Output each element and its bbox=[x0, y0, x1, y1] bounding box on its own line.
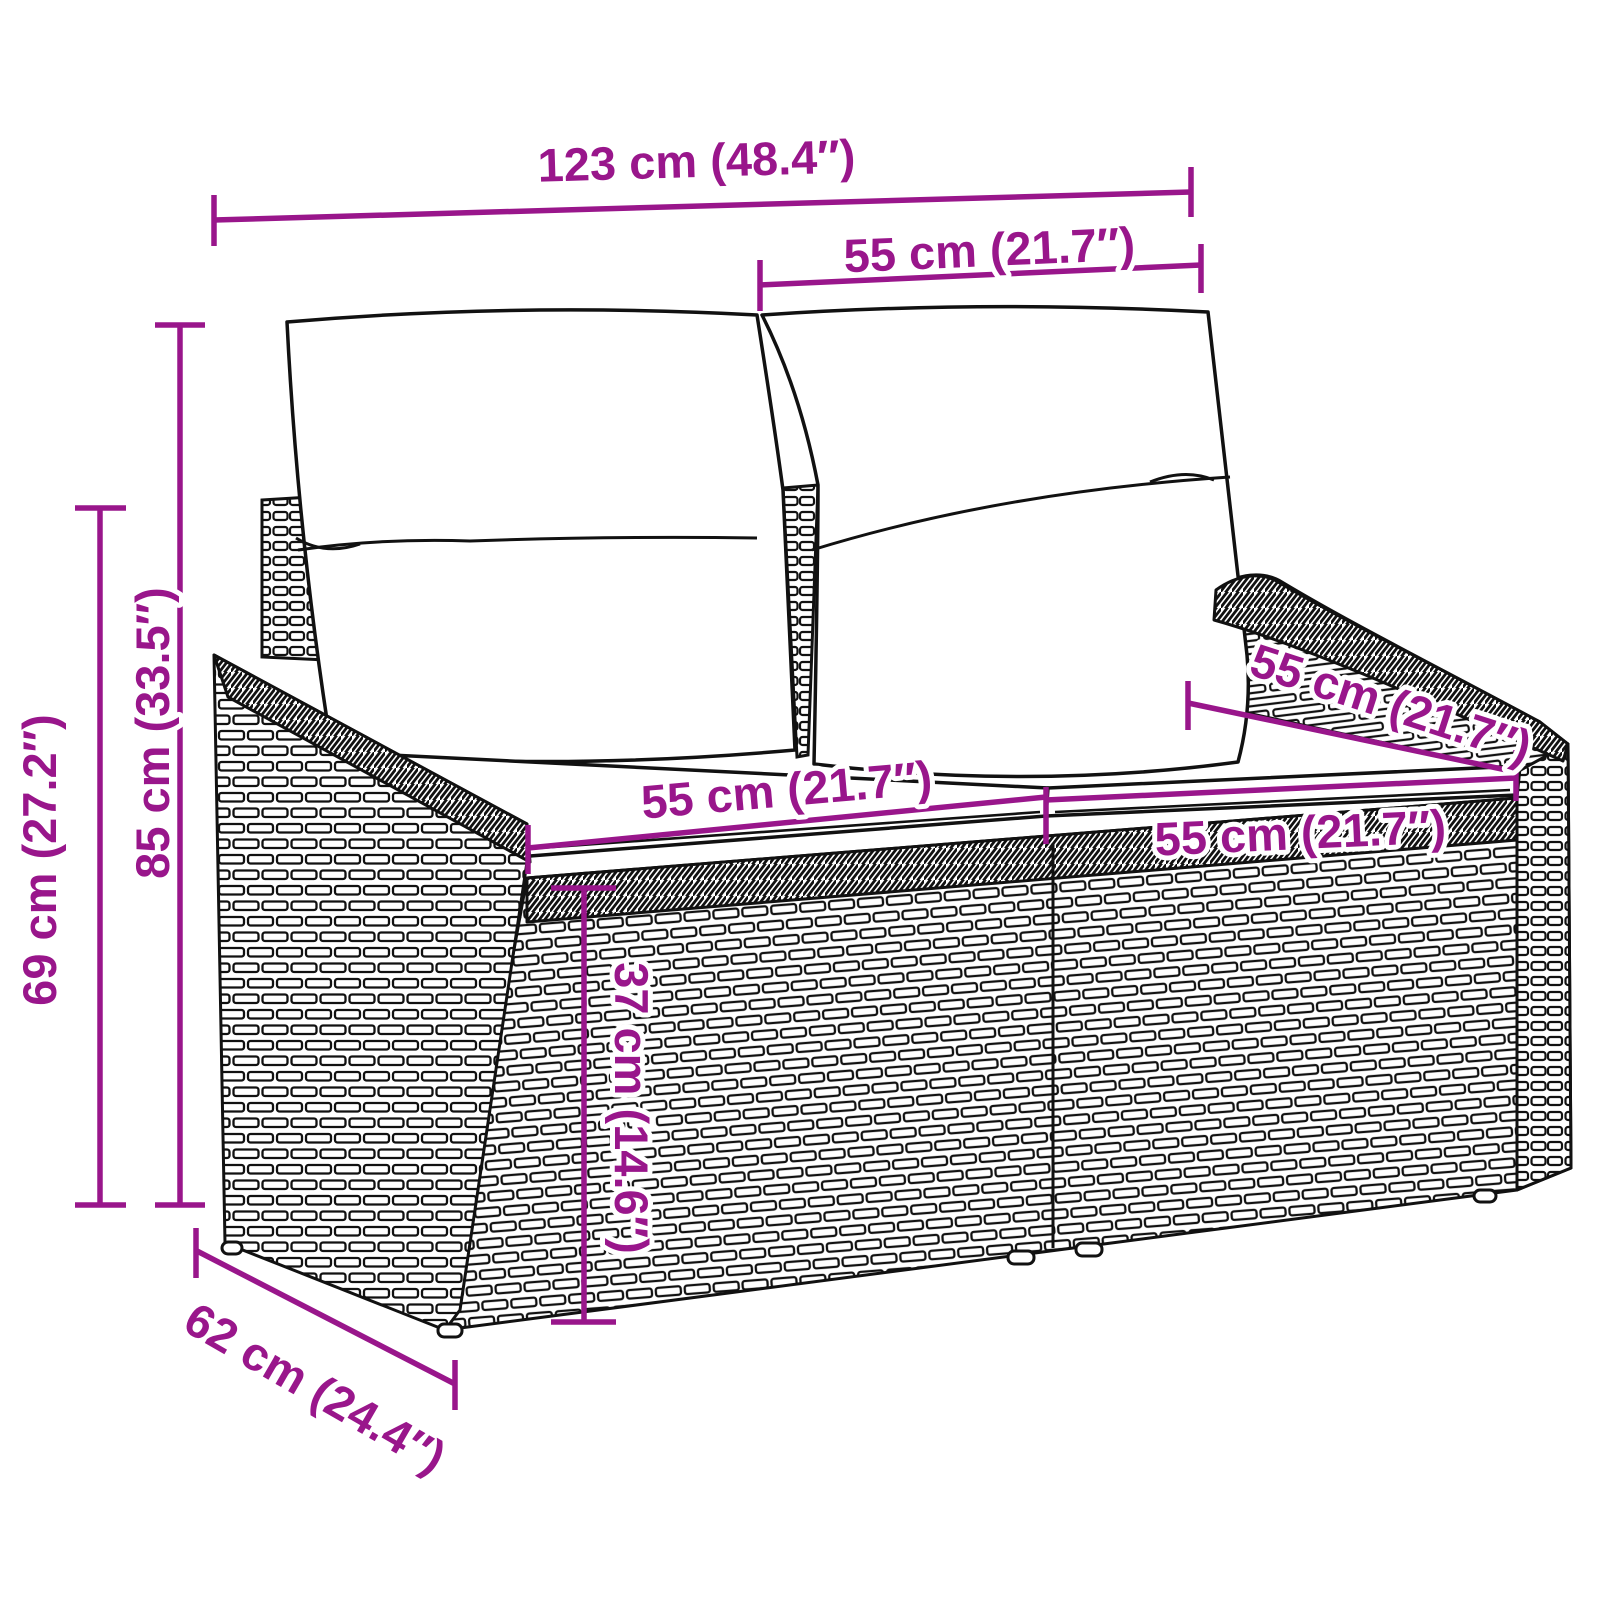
svg-text:85 cm (33.5″): 85 cm (33.5″) bbox=[126, 587, 179, 879]
svg-text:123 cm (48.4″): 123 cm (48.4″) bbox=[537, 129, 856, 191]
svg-text:37 cm (14.6″): 37 cm (14.6″) bbox=[605, 962, 658, 1254]
svg-text:69 cm (27.2″): 69 cm (27.2″) bbox=[13, 714, 66, 1006]
